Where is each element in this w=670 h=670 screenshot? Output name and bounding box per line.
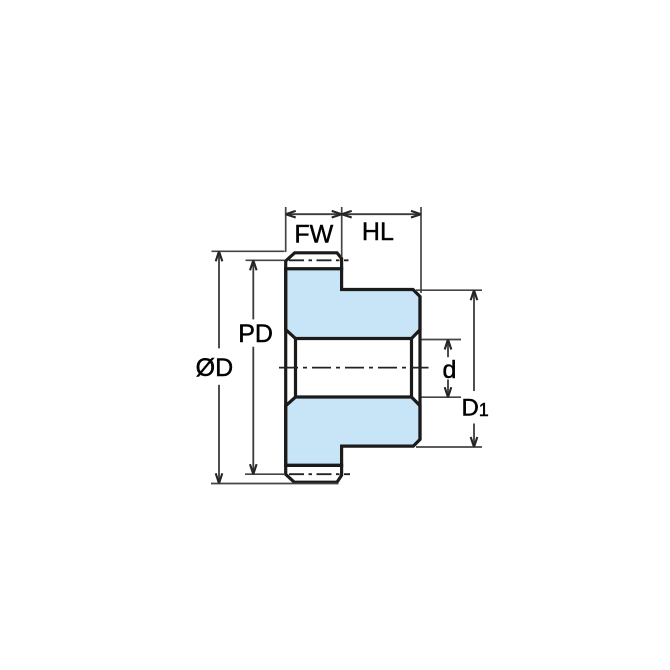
svg-text:1: 1 — [479, 400, 489, 420]
svg-text:D: D — [462, 395, 479, 422]
svg-text:d: d — [442, 356, 456, 384]
svg-text:PD: PD — [238, 320, 273, 348]
svg-text:ØD: ØD — [196, 354, 234, 382]
svg-text:HL: HL — [362, 218, 394, 246]
svg-text:FW: FW — [294, 221, 333, 249]
